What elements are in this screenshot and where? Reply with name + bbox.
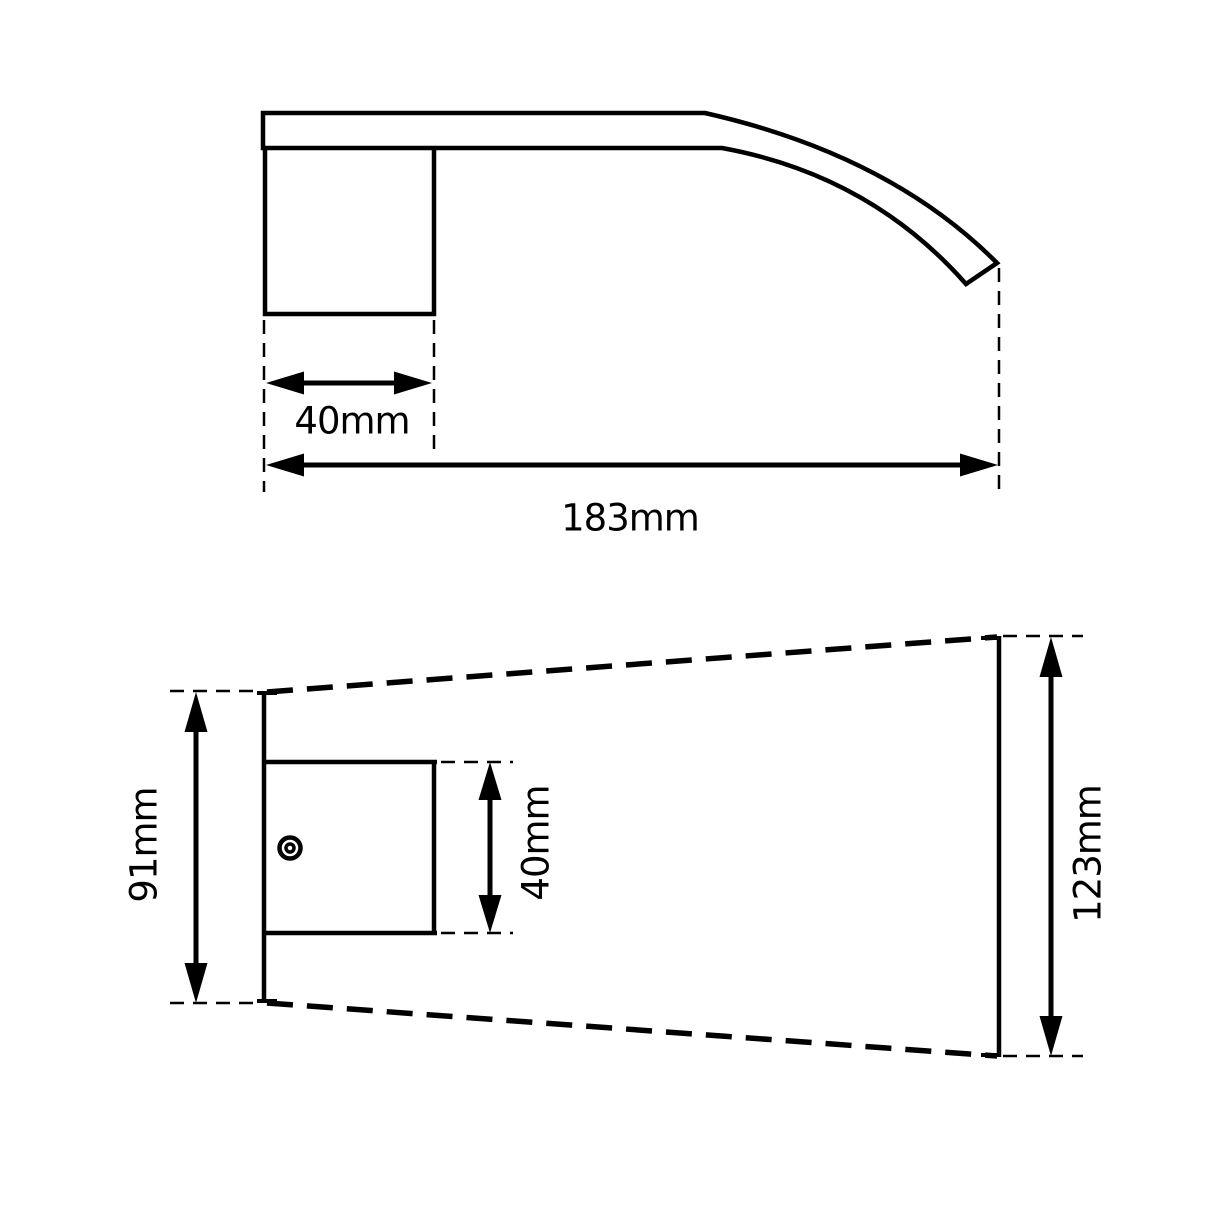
arrowhead-up-icon	[185, 692, 208, 732]
dim-label-plate-height: 91mm	[123, 787, 166, 902]
arrowhead-down-icon	[1040, 1016, 1063, 1056]
arrowhead-right-icon	[394, 372, 432, 395]
arrowhead-left-icon	[266, 372, 304, 395]
arrowhead-up-icon	[1040, 637, 1063, 677]
faucet-dimension-drawing: 40mm 183mm	[0, 0, 1214, 1214]
side-view: 40mm 183mm	[263, 113, 999, 540]
dim-label-outlet-spread: 123mm	[1067, 785, 1110, 923]
dim-label-block-height: 40mm	[515, 785, 558, 900]
plan-view: 91mm 40mm 123mm	[123, 636, 1110, 1057]
arrowhead-up-icon	[479, 762, 502, 800]
dim-overall-length: 183mm	[266, 454, 998, 540]
mounting-block-plan	[264, 762, 437, 933]
arrowhead-down-icon	[185, 963, 208, 1003]
screw-hole-icon	[280, 838, 301, 859]
dim-block-height: 40mm	[479, 762, 558, 933]
arrowhead-right-icon	[960, 454, 998, 477]
mounting-block-side	[265, 150, 434, 314]
drawing-svg: 40mm 183mm	[0, 0, 1214, 1214]
arrowhead-down-icon	[479, 895, 502, 933]
spout-profile-outline	[263, 113, 997, 284]
dim-block-width: 40mm	[266, 372, 432, 443]
spread-outline-dashed-bottom	[267, 1003, 997, 1056]
dim-plate-height: 91mm	[123, 692, 208, 1003]
dim-label-block-width: 40mm	[294, 400, 409, 443]
spread-outline-dashed-top	[267, 637, 997, 692]
dim-label-overall-length: 183mm	[561, 497, 699, 540]
dim-outlet-spread: 123mm	[1040, 637, 1110, 1056]
arrowhead-left-icon	[266, 454, 304, 477]
